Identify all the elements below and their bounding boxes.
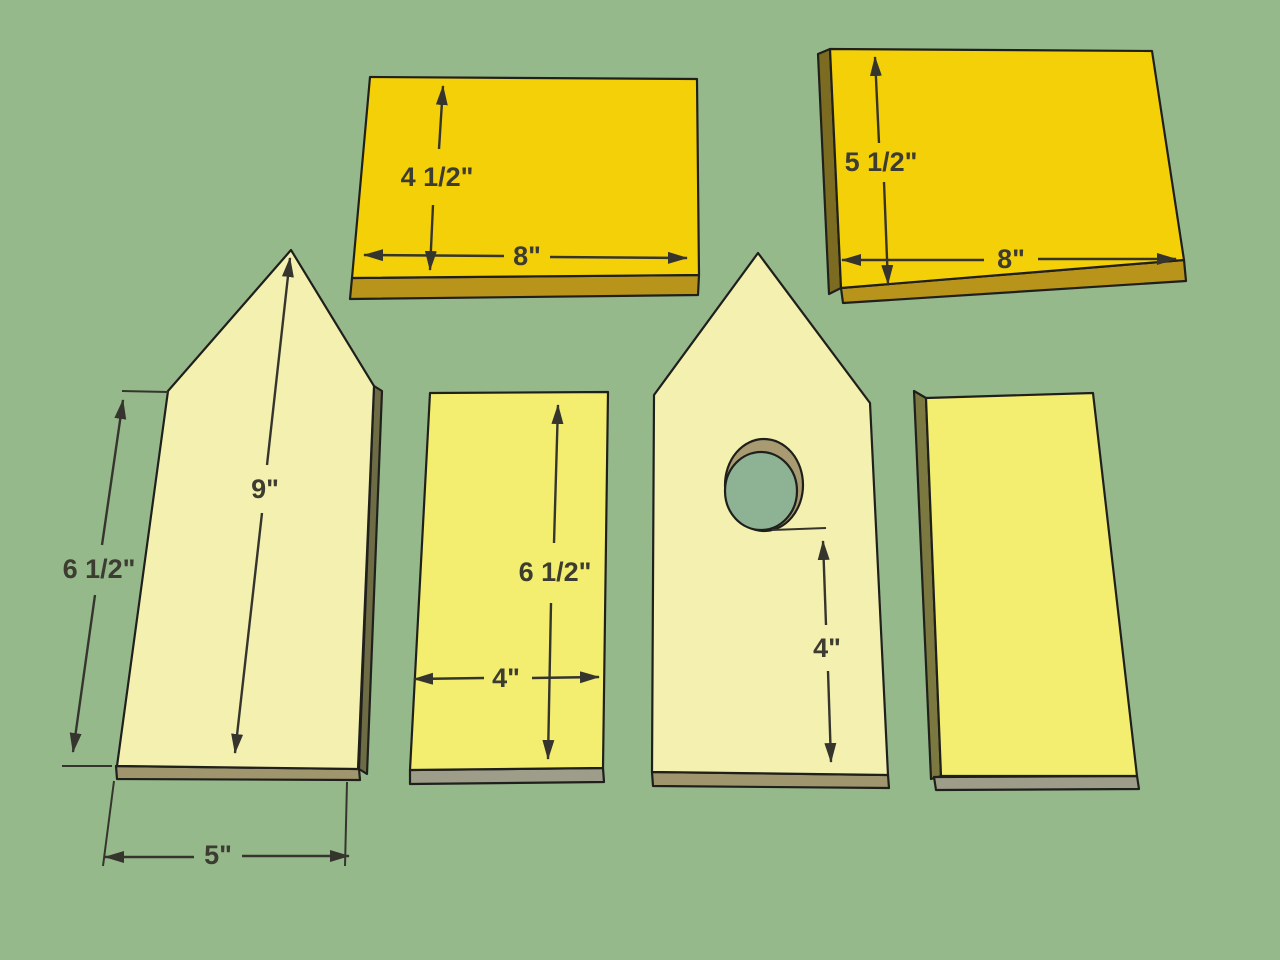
dim-label-width: 5" <box>204 840 232 870</box>
dim-label-ridge: 9" <box>251 474 279 504</box>
dim-label-side: 6 1/2" <box>63 554 136 584</box>
dim-label-width: 8" <box>513 241 541 271</box>
gold-board-right: 5 1/2" 8" <box>818 49 1186 303</box>
dimension-line <box>364 255 504 256</box>
extension-line <box>122 391 168 392</box>
dim-label-height: 4 1/2" <box>401 162 474 192</box>
dim-label-height: 5 1/2" <box>845 147 918 177</box>
rect-panel-center: 6 1/2" 4" <box>410 392 608 784</box>
dim-label-width: 8" <box>997 244 1025 274</box>
dim-label-hole-offset: 4" <box>813 633 841 663</box>
entry-hole <box>725 452 797 530</box>
dimension-line <box>532 677 599 678</box>
birdhouse-plan-diagram: 4 1/2" 8" 5 1/2" 8" 9" 6 1/2" 5" <box>0 0 1280 960</box>
diagram-canvas: 4 1/2" 8" 5 1/2" 8" 9" 6 1/2" 5" <box>0 0 1280 960</box>
dimension-line <box>550 257 687 258</box>
dim-label-height: 6 1/2" <box>519 557 592 587</box>
dim-label-width: 4" <box>492 663 520 693</box>
dimension-line <box>414 678 484 679</box>
gold-board-left: 4 1/2" 8" <box>350 77 699 299</box>
rect-panel-right-bottom-edge <box>934 776 1139 790</box>
